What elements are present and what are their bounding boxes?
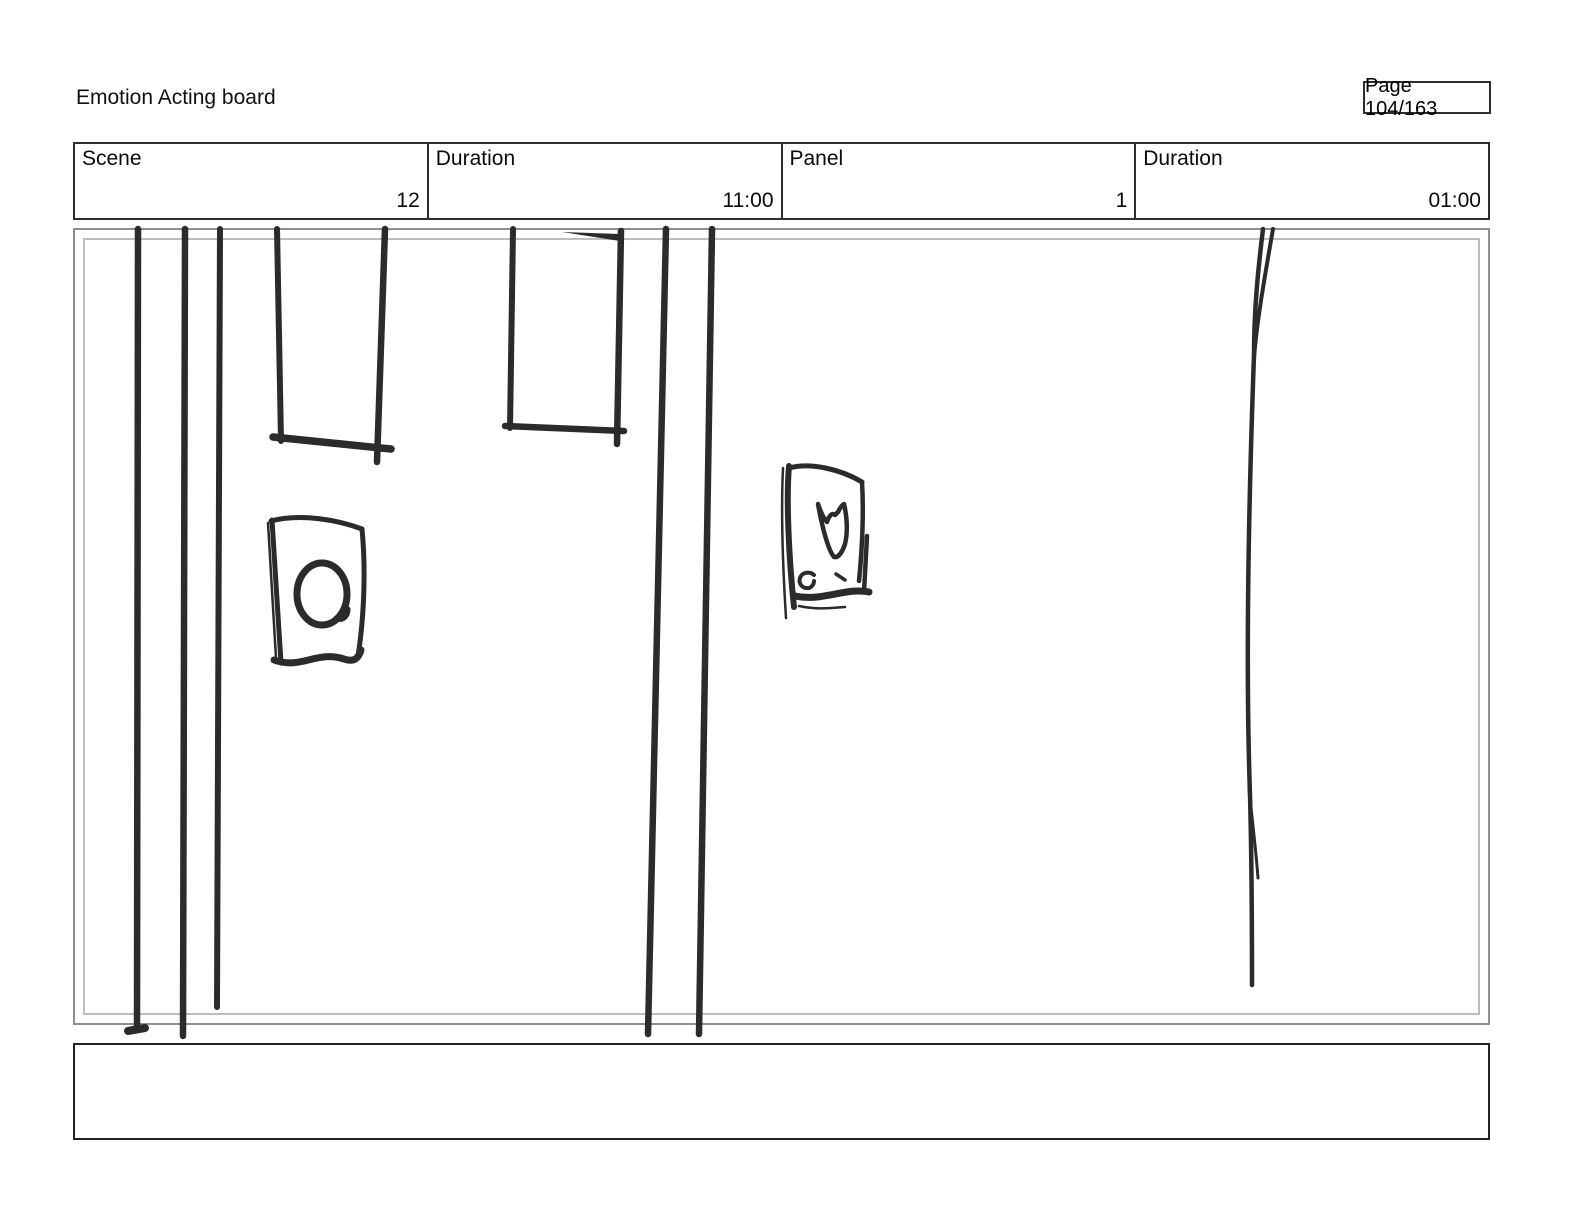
- scene-duration-label: Duration: [436, 147, 774, 171]
- panel-duration-label: Duration: [1143, 147, 1481, 171]
- info-cell-panel: Panel 1: [783, 144, 1137, 218]
- panel-value: 1: [790, 189, 1128, 213]
- page-title: Emotion Acting board: [76, 86, 276, 110]
- page-number-box: Page 104/163: [1363, 81, 1491, 114]
- page-number-label: Page 104/163: [1365, 75, 1489, 121]
- storyboard-panel-inner-border: [83, 238, 1480, 1015]
- info-cell-scene: Scene 12: [75, 144, 429, 218]
- notes-box: [73, 1043, 1490, 1140]
- info-table: Scene 12 Duration 11:00 Panel 1 Duration…: [73, 142, 1490, 220]
- panel-duration-value: 01:00: [1143, 189, 1481, 213]
- scene-value: 12: [82, 189, 420, 213]
- info-cell-panel-duration: Duration 01:00: [1136, 144, 1488, 218]
- scene-label: Scene: [82, 147, 420, 171]
- info-cell-scene-duration: Duration 11:00: [429, 144, 783, 218]
- panel-label: Panel: [790, 147, 1128, 171]
- scene-duration-value: 11:00: [436, 189, 774, 213]
